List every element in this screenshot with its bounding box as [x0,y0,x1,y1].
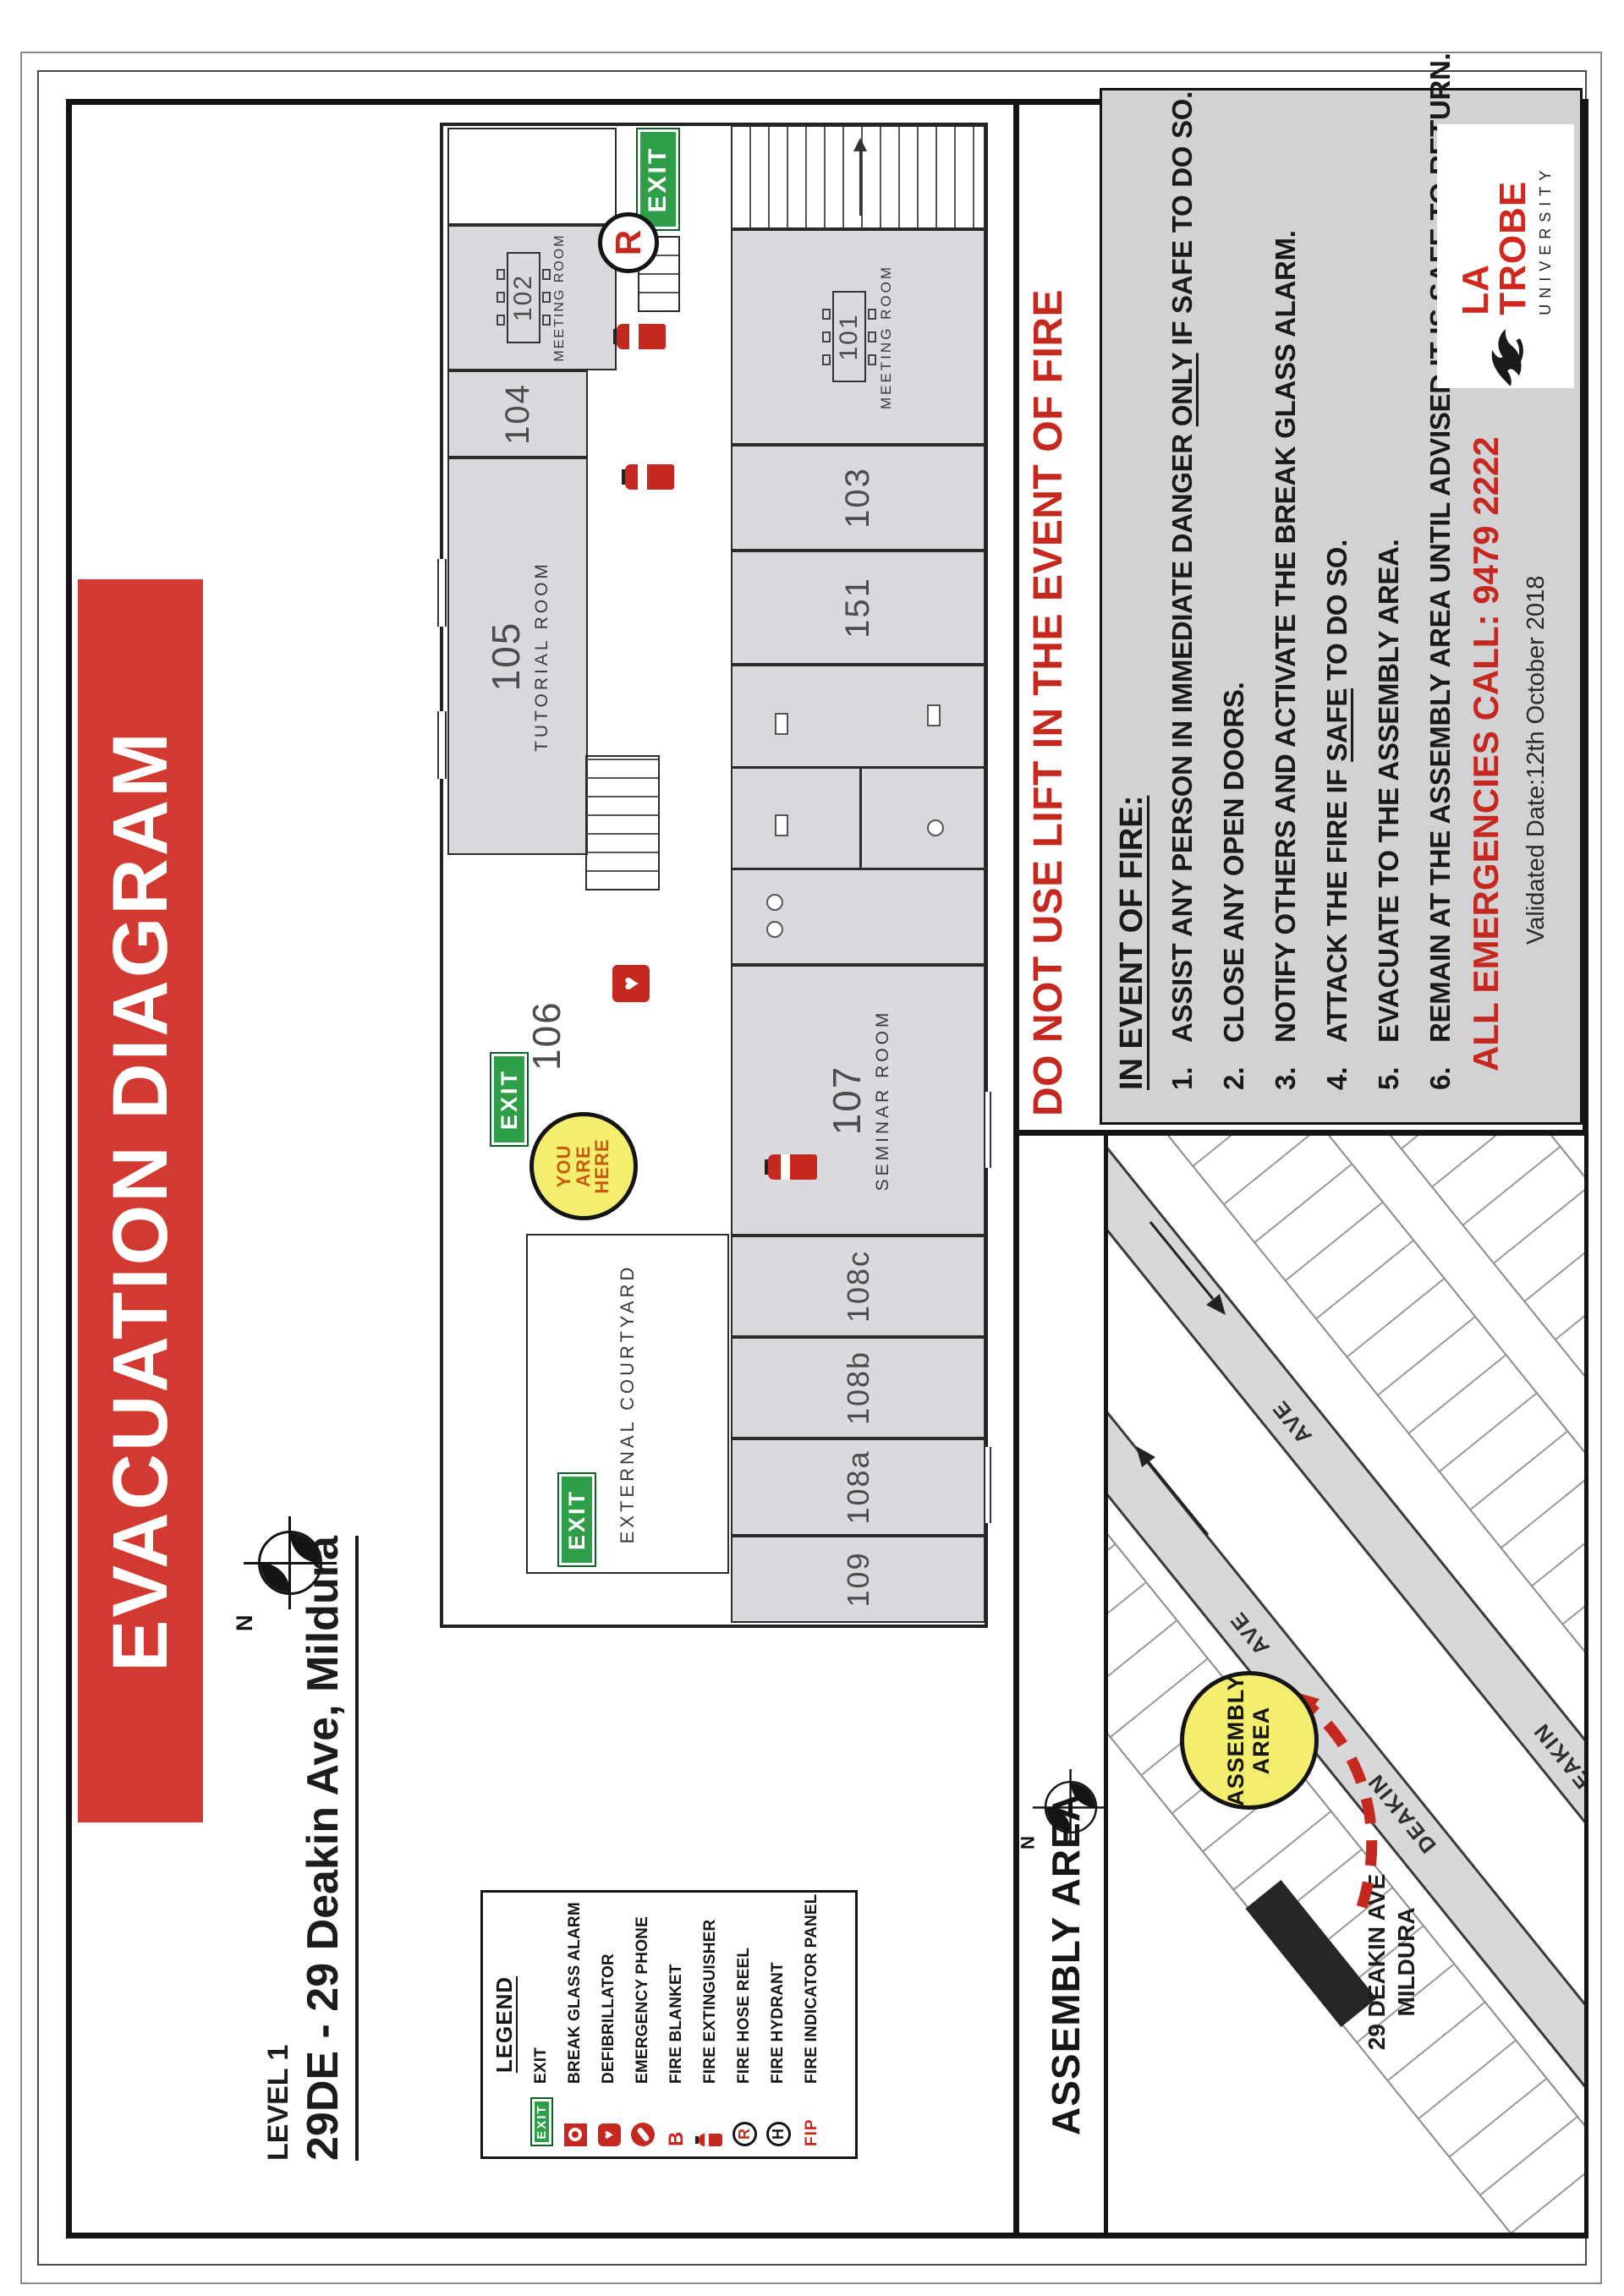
assembly-area-map: AVE AVE DEAKIN DEAKIN 29 DEAKIN AVE MILD… [1108,1136,1584,2233]
fire-extinguisher-icon [617,324,666,349]
fire-hose-reel-icon: R [732,2122,757,2146]
la-trobe-logo: LA TROBE UNIVERSITY [1437,124,1574,388]
north-compass-icon: N [244,1516,337,1609]
fire-extinguisher-icon [625,464,674,490]
window [437,711,447,779]
legend-item-fire-extinguisher: FIRE EXTINGUISHER [694,1893,727,2156]
page-title: 29DE - 29 Deakin Ave, Mildura [298,1536,359,2161]
fire-extinguisher-icon [768,1154,817,1180]
room-103: 103 [731,445,985,551]
fire-blanket-icon: B [665,2132,689,2146]
level-label: LEVEL 1 [262,2045,295,2161]
exit-sign-lobby: EXIT [490,1052,529,1147]
fire-hydrant-icon: H [766,2122,791,2146]
window [437,559,447,627]
entry-vestibule [447,128,617,225]
room-108c: 108c [731,1236,985,1337]
banner-evacuation-diagram: EVACUATION DIAGRAM [78,579,203,1822]
instruction-item: 1. ASSIST ANY PERSON IN IMMEDIATE DANGER… [1166,53,1199,1090]
validated-date: Validated Date:12th October 2018 [1522,576,1550,945]
section-divider-horizontal [1013,105,1019,2233]
north-compass-icon: N [1033,1769,1109,1845]
eagle-emblem-icon [1481,327,1530,388]
instruction-item: 3. NOTIFY OTHERS AND ACTIVATE THE BREAK … [1270,53,1302,1090]
emergency-call-line: ALL EMERGENCIES CALL: 9479 2222 [1466,436,1506,1071]
defibrillator-icon: ♥ [612,965,650,1002]
room-105-tutorial: 105 TUTORIAL ROOM [447,458,588,855]
defibrillator-icon: ♥ [598,2123,621,2146]
legend-item-fire-indicator-panel: FIP FIRE INDICATOR PANEL [795,1893,829,2156]
legend-item-defibrillator: ♥ DEFIBRILLATOR [592,1893,626,2156]
room-108a: 108a [731,1438,985,1536]
you-are-here-marker: YOU ARE HERE [529,1112,638,1220]
legend-item-fire-blanket: B FIRE BLANKET [660,1893,694,2156]
instructions-list: 1. ASSIST ANY PERSON IN IMMEDIATE DANGER… [1166,53,1476,1090]
legend-title: LEGEND [491,1893,518,2156]
room-151: 151 [731,551,985,665]
legend-item-exit: EXIT EXIT [524,1893,558,2156]
assembly-area-header: ASSEMBLY AREA N [1019,1136,1108,2233]
fire-extinguisher-icon [699,2134,722,2146]
instruction-item: 5. EVACUATE TO THE ASSEMBLY AREA. [1373,53,1405,1090]
evacuation-route-dashed [1309,1707,1372,1907]
north-label: N [232,1615,258,1632]
exit-sign-icon: EXIT [530,2097,553,2146]
room-102-meeting: 102 MEETING ROOM [447,225,617,370]
logo-brand: LA TROBE [1457,124,1532,315]
room-107-seminar: 107 SEMINAR ROOM [731,965,985,1236]
legend-item-break-glass-alarm: BREAK GLASS ALARM [558,1893,592,2156]
main-exit-stairs [731,125,985,229]
lift-warning: DO NOT USE LIFT IN THE EVENT OF FIRE [1025,289,1072,1116]
instructions-heading: IN EVENT OF FIRE: [1114,796,1150,1090]
room-108b: 108b [731,1337,985,1438]
exit-sign-courtyard: EXIT [557,1472,596,1567]
room-104: 104 [447,370,588,458]
room-external-courtyard: EXTERNAL COURTYARD [526,1234,729,1574]
emergency-phone-icon [631,2123,655,2146]
meeting-table: 101 [822,292,876,383]
room-109: 109 [731,1536,985,1623]
floor-plan: EXTERNAL COURTYARD 105 TUTORIAL ROOM 104… [440,123,988,1628]
legend-item-fire-hydrant: H FIRE HYDRANT [761,1893,795,2156]
toilet-block [731,665,985,965]
legend-item-fire-hose-reel: R FIRE HOSE REEL [727,1893,761,2156]
assembly-point-marker: ASSEMBLY AREA [1180,1671,1319,1810]
instruction-item: 4. ATTACK THE FIRE IF SAFE TO DO SO. [1321,53,1353,1090]
evacuation-diagram-page: EVACUATION DIAGRAM LEVEL 1 29DE - 29 Dea… [0,0,1624,2296]
meeting-table: 102 [497,252,551,343]
instruction-item: 2. CLOSE ANY OPEN DOORS. [1218,53,1250,1090]
legend-item-emergency-phone: EMERGENCY PHONE [626,1893,660,2156]
room-106-label: 106 [524,1000,569,1071]
break-glass-alarm-icon [564,2123,587,2146]
north-label: N [1018,1836,1039,1849]
fire-hose-reel-icon: R [598,212,659,273]
section-divider-vertical [1013,1130,1583,1136]
legend: LEGEND EXIT EXIT BREAK GLASS ALARM ♥ DEF… [480,1890,858,2159]
internal-stairs [585,755,660,890]
logo-subtitle: UNIVERSITY [1537,124,1555,315]
stair-direction-arrow [859,150,862,216]
fire-indicator-panel-icon: FIP [803,2118,821,2146]
room-101-meeting: 101 MEETING ROOM [731,229,985,445]
instructions-panel: IN EVENT OF FIRE: 1. ASSIST ANY PERSON I… [1100,88,1583,1125]
banner-title: EVACUATION DIAGRAM [96,730,185,1672]
map-overlay-arrows [1108,1136,1584,2233]
